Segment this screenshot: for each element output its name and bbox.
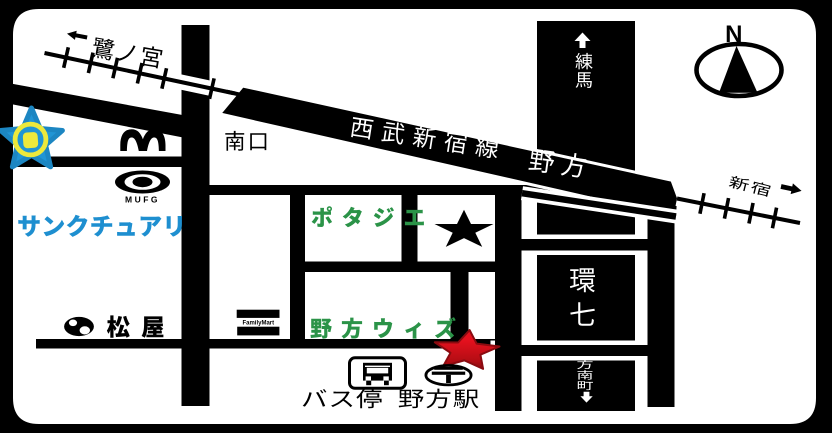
svg-text:N: N — [725, 21, 742, 48]
svg-text:MUFG: MUFG — [125, 195, 160, 205]
svg-text:FamilyMart: FamilyMart — [242, 320, 274, 326]
